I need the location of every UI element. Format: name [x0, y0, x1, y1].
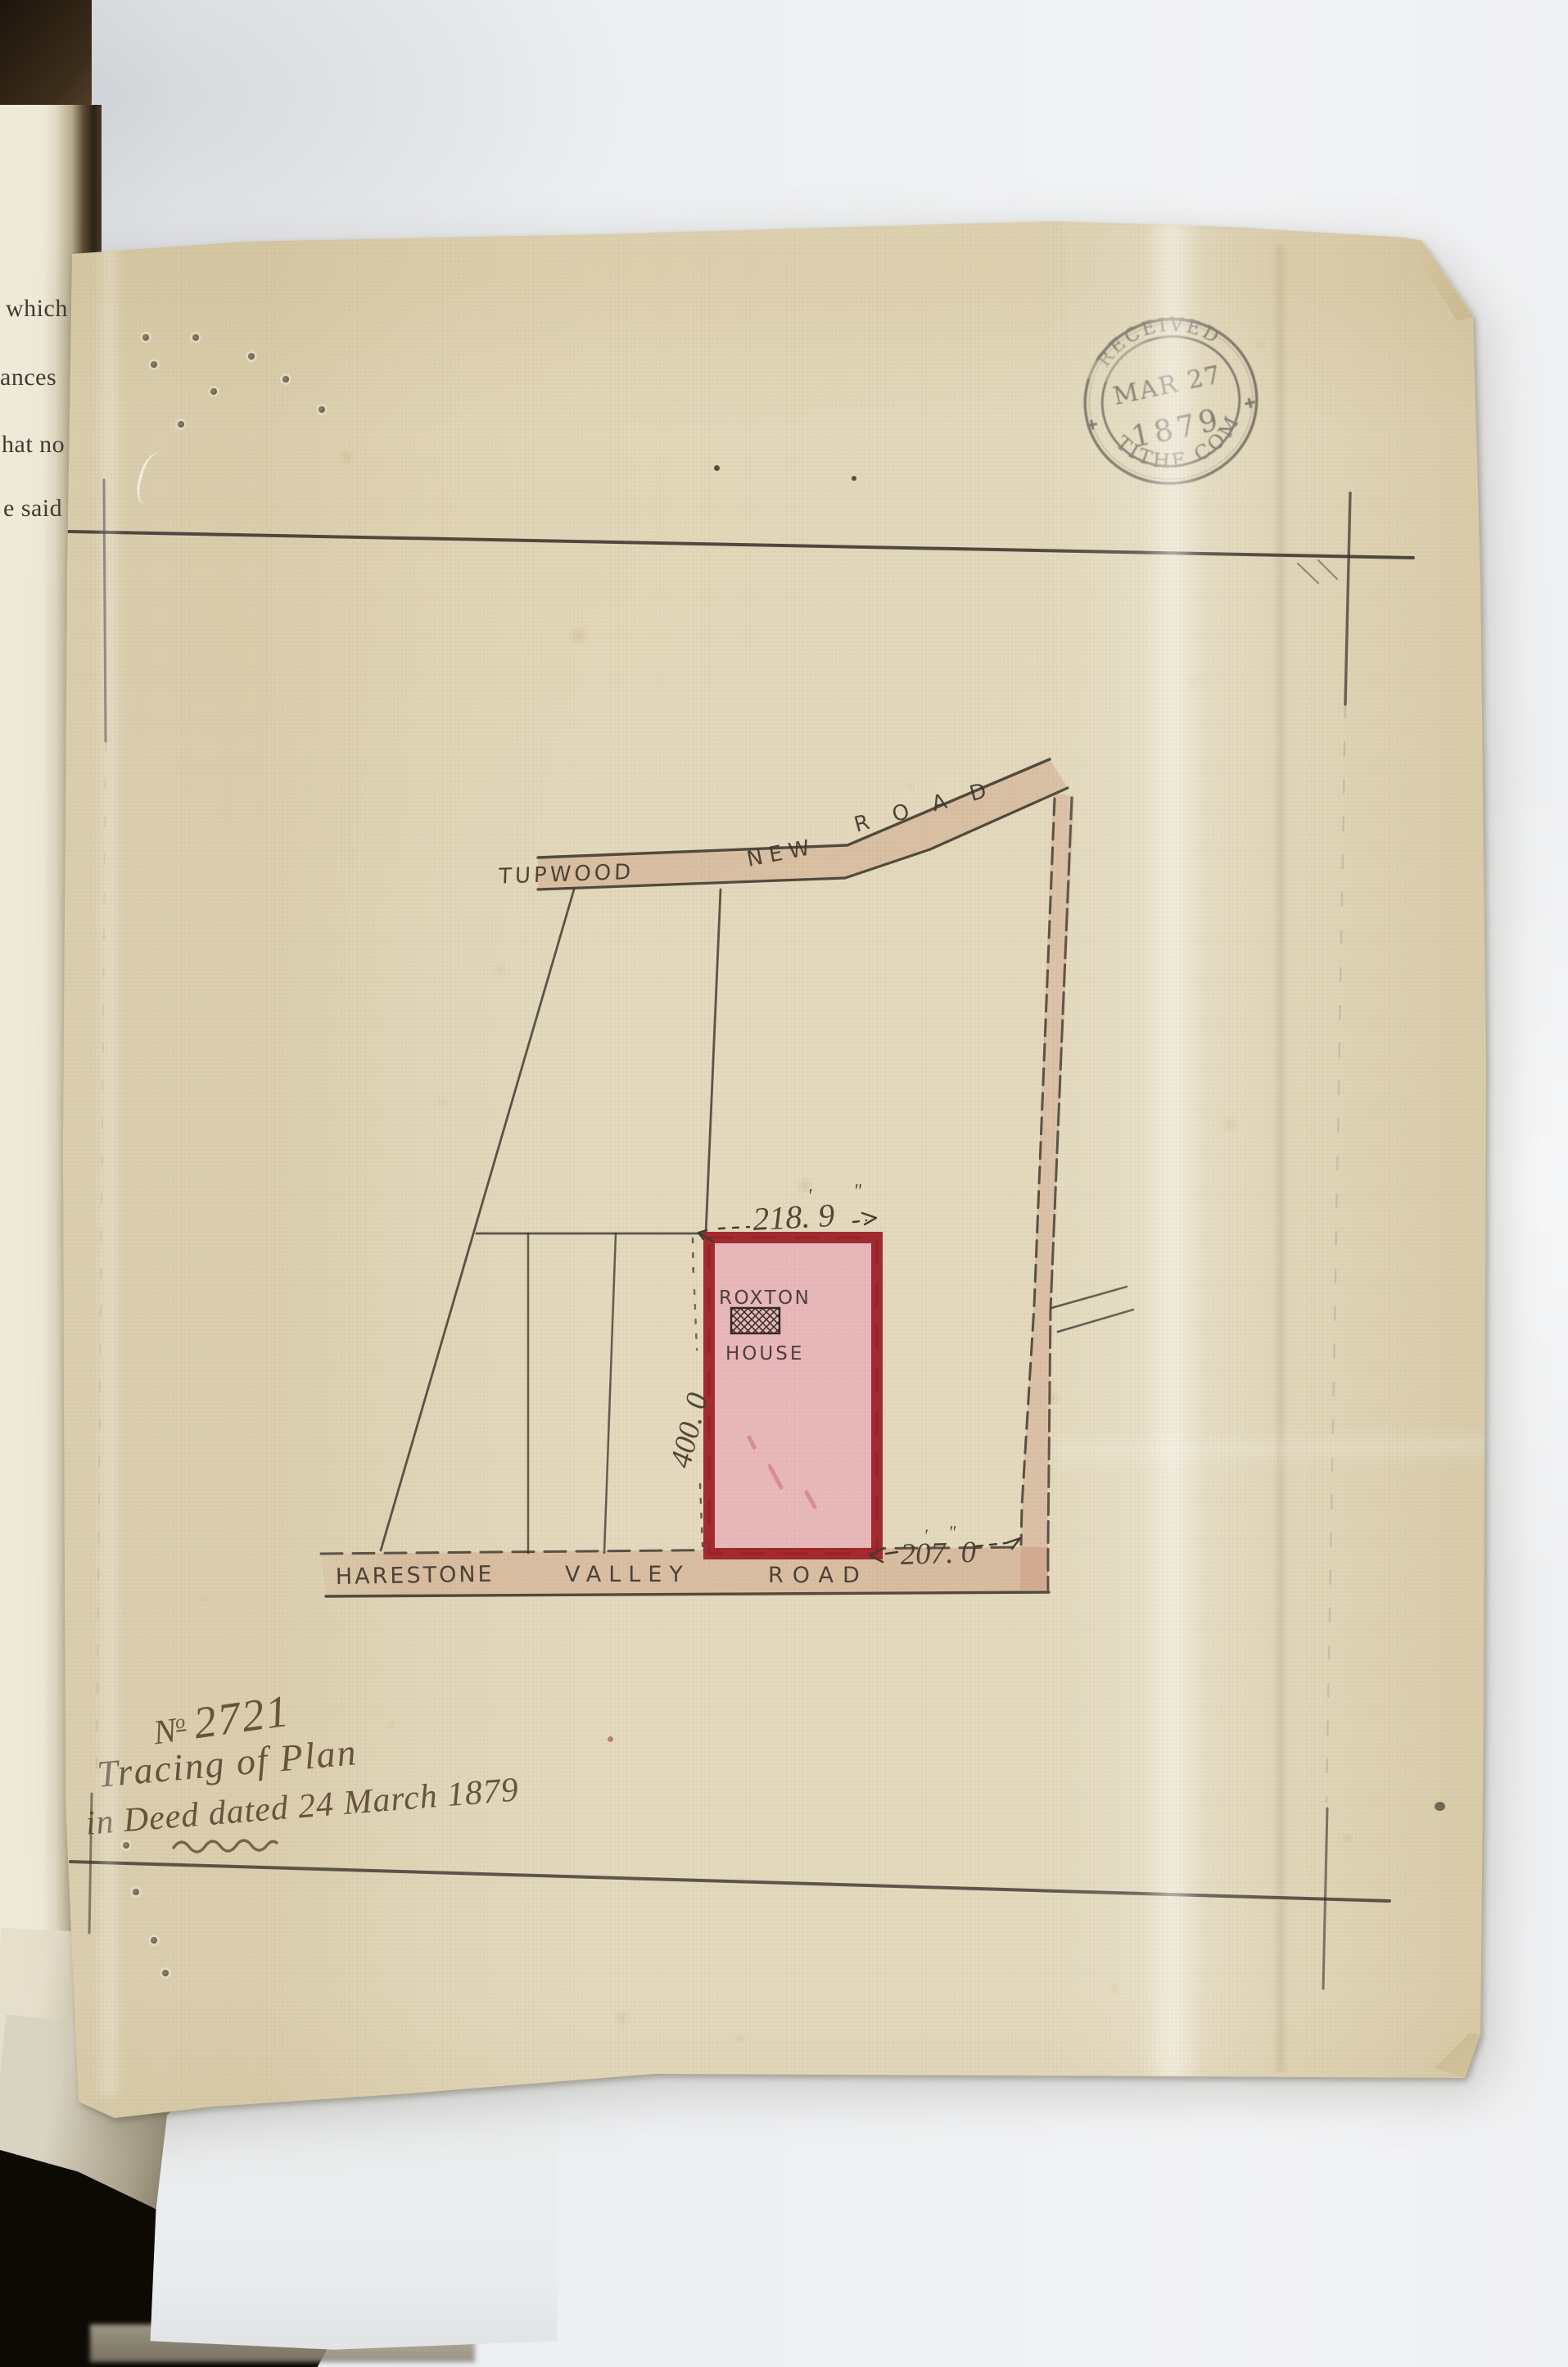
foxing-spot — [337, 449, 357, 465]
pin-hole — [162, 1970, 169, 1976]
foxing-spot — [794, 1176, 816, 1194]
dimension-top: 218. 9 — [752, 1197, 835, 1238]
road-label-tupwood: TUPWOOD — [498, 860, 635, 889]
pin-hole — [178, 421, 184, 428]
paper-scratch — [133, 450, 176, 509]
road-label-road-bottom: ROAD — [768, 1563, 869, 1588]
ink-speck — [1435, 1802, 1445, 1811]
pin-hole — [151, 361, 157, 368]
pin-hole — [133, 1889, 139, 1895]
pin-hole — [282, 376, 289, 382]
annotation-no-prefix: N — [151, 1712, 178, 1752]
foxing-spot — [491, 962, 508, 977]
paper-edge-highlight — [95, 246, 123, 2097]
road-outlines — [321, 759, 1133, 1596]
annotation-no-sup: o — [174, 1711, 187, 1733]
handwriting-flourish — [174, 1840, 277, 1852]
road-label-harestone: HARESTONE — [336, 1562, 495, 1590]
plot-label-house: HOUSE — [725, 1343, 804, 1365]
annotation-deed-date: in Deed dated 24 March 1879 — [84, 1770, 521, 1843]
pin-hole — [142, 334, 149, 341]
paper-crease-shadow — [1274, 246, 1287, 2072]
paper-grain-texture — [0, 0, 1568, 2367]
foxing-spot — [1253, 337, 1268, 351]
red-speck — [608, 1736, 613, 1742]
foxing-spot — [1045, 1391, 1063, 1405]
annotation-title: Tracing of Plan — [95, 1730, 359, 1796]
folded-corner-top-right — [1403, 233, 1484, 327]
foxing-spot — [198, 1592, 210, 1603]
svg-text:TITHE COM: TITHE COM — [1109, 406, 1253, 485]
stamp-text-top: RECEIVED — [1087, 302, 1228, 373]
plot-label-roxton: ROXTON — [719, 1288, 811, 1309]
annotation-no-value: 2721 — [191, 1686, 293, 1749]
stamp-worn-area — [1082, 333, 1172, 390]
stamp-cross-marks — [1087, 386, 1256, 441]
received-stamp: RECEIVED MAR 27 1879 TITHE COM — [1068, 298, 1272, 500]
dimension-lines — [693, 1213, 1020, 1562]
foxing-spot — [1182, 677, 1196, 688]
pin-hole — [319, 406, 325, 413]
road-label-valley: VALLEY — [565, 1562, 690, 1587]
ink-speck — [714, 465, 720, 471]
ink-frame-border — [69, 480, 1413, 1989]
foxing-spot — [905, 781, 917, 792]
foxing-spot — [1218, 1114, 1241, 1134]
pin-hole — [151, 1937, 157, 1944]
foxing-spot — [567, 626, 590, 645]
stamp-text-bottom: TITHE COM — [1109, 406, 1253, 485]
tracing-paper: TUPWOOD NEW ROAD HARESTONE VALLEY ROAD R… — [0, 0, 1568, 2367]
dimension-left: 400. 0 — [664, 1389, 715, 1471]
foxing-spot — [612, 2010, 632, 2026]
stamp-date-month: MAR 27 — [1110, 360, 1224, 411]
inches-mark: " — [948, 1522, 956, 1542]
house-building-symbol — [731, 1308, 779, 1333]
feet-mark: ' — [924, 1525, 928, 1546]
dimension-bottom: 207. 0 — [900, 1536, 977, 1572]
pin-hole — [248, 353, 255, 360]
foxing-spot — [734, 2033, 748, 2044]
foxing-spot — [436, 1096, 450, 1108]
foxing-spot — [1341, 1833, 1353, 1844]
plot-boundaries — [381, 889, 721, 1553]
road-label-road-top: ROAD — [852, 772, 1013, 838]
inches-mark: " — [853, 1181, 862, 1202]
foxing-spot — [1107, 1982, 1123, 1995]
foxing-spot — [385, 1720, 396, 1730]
paper-horizontal-crease — [1056, 1429, 1499, 1469]
pin-hole — [192, 334, 199, 341]
road-label-new: NEW — [745, 835, 819, 872]
ink-speck — [852, 476, 856, 481]
svg-text:RECEIVED: RECEIVED — [1087, 302, 1228, 373]
feet-mark: ' — [807, 1186, 812, 1207]
road-wash-fills — [321, 759, 1074, 1596]
annotation-number: No 2721 — [149, 1685, 293, 1755]
roxton-house-plot — [709, 1238, 877, 1554]
pin-hole — [210, 388, 217, 395]
paper-sheen — [1033, 221, 1287, 2080]
paper-fold-highlight — [1142, 221, 1203, 2080]
photograph-of-deed-plan: which ances hat no e said — [0, 0, 1568, 2367]
tracing-paper-wrap: TUPWOOD NEW ROAD HARESTONE VALLEY ROAD R… — [0, 0, 1568, 2367]
folded-corner-bottom-right — [1425, 2023, 1490, 2084]
pin-hole — [123, 1842, 129, 1849]
plan-ink-layer: TUPWOOD NEW ROAD HARESTONE VALLEY ROAD R… — [0, 0, 1568, 2367]
stamp-date-year: 1879 — [1128, 403, 1225, 455]
